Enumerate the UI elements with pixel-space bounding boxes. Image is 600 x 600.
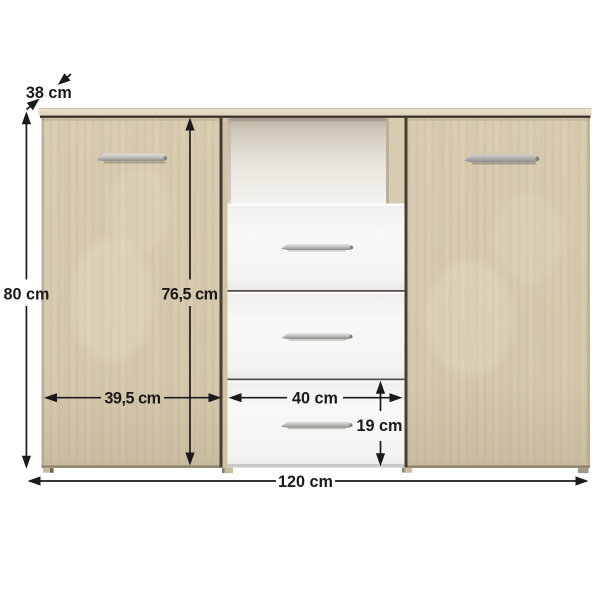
svg-text:39,5 cm: 39,5 cm: [104, 389, 160, 407]
svg-text:38 cm: 38 cm: [26, 84, 72, 102]
svg-text:76,5 cm: 76,5 cm: [161, 285, 217, 303]
svg-text:80 cm: 80 cm: [4, 285, 50, 303]
svg-text:120 cm: 120 cm: [278, 473, 333, 491]
svg-text:19 cm: 19 cm: [357, 417, 403, 435]
svg-text:40 cm: 40 cm: [292, 389, 338, 407]
